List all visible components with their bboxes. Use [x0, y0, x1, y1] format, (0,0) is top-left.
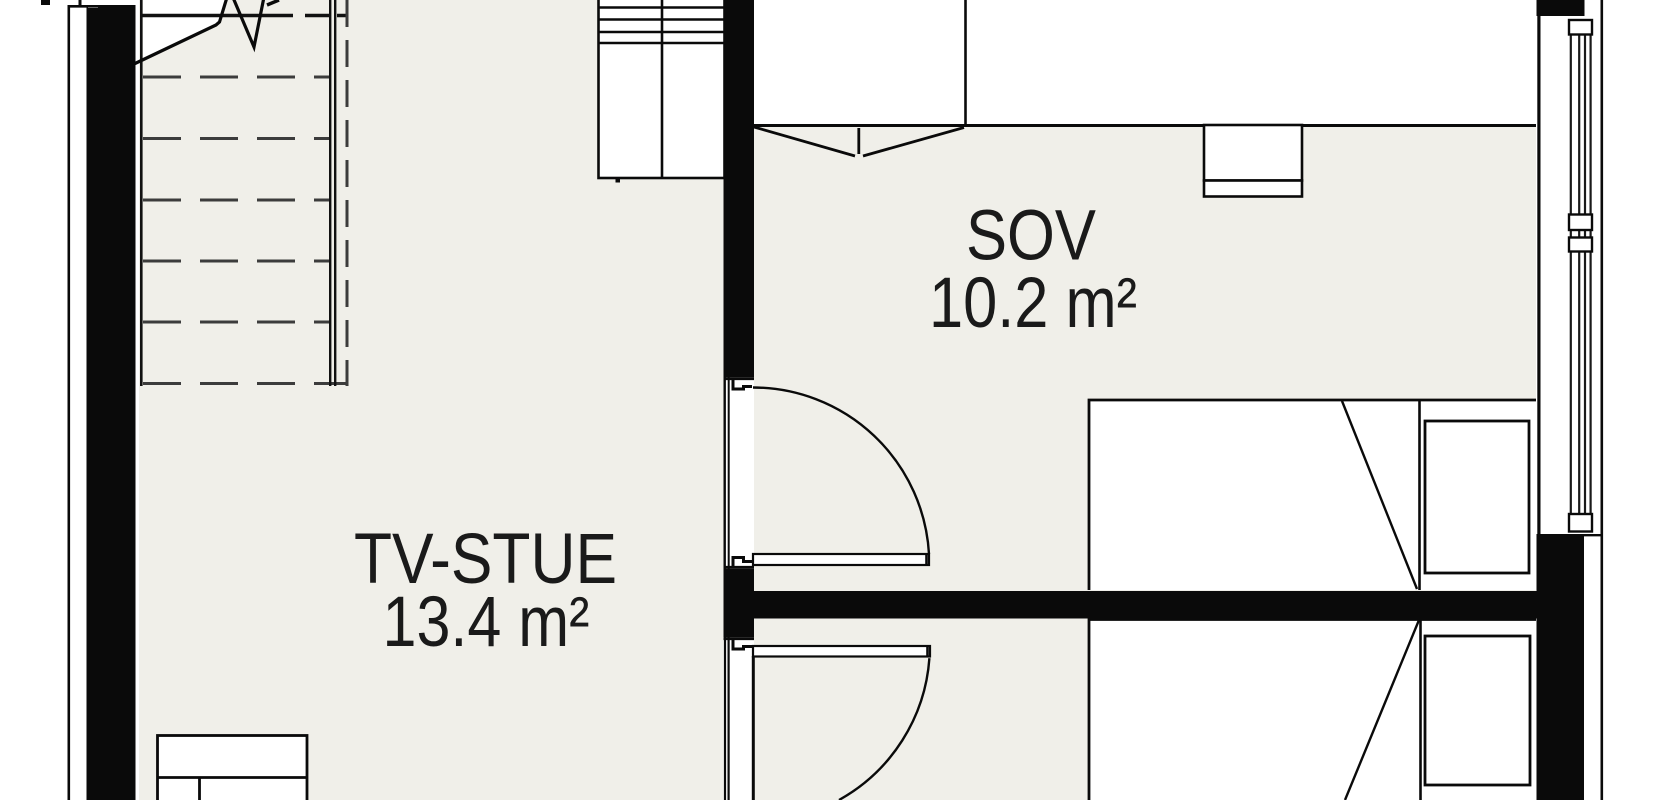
svg-text:13.4 m²: 13.4 m²: [383, 583, 590, 662]
svg-text:10.2 m²: 10.2 m²: [929, 264, 1137, 343]
